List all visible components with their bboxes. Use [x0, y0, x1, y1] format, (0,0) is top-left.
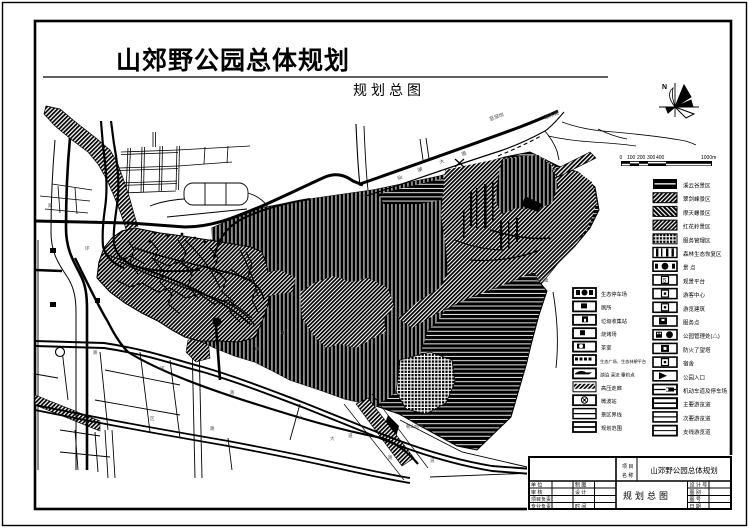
svg-text:朝山修平: 朝山修平: [406, 423, 424, 430]
svg-text:项目负责: 项目负责: [531, 496, 551, 503]
svg-text:N: N: [662, 84, 667, 91]
svg-text:200: 200: [637, 155, 646, 161]
svg-text:审 核: 审 核: [531, 489, 542, 496]
svg-text:1000m: 1000m: [701, 155, 716, 161]
svg-text:垃圾收集站: 垃圾收集站: [601, 317, 627, 325]
svg-text:溪云谷景区: 溪云谷景区: [683, 182, 711, 190]
svg-text:日 期: 日 期: [690, 504, 701, 510]
svg-text:生态停车场: 生态停车场: [601, 290, 627, 298]
svg-text:设 计: 设 计: [575, 489, 586, 496]
svg-text:宿舍: 宿舍: [683, 360, 695, 368]
svg-text:微波站: 微波站: [601, 397, 617, 405]
svg-text:大: 大: [330, 435, 335, 442]
svg-text:森林生态恢复区: 森林生态恢复区: [683, 250, 722, 258]
svg-text:规划范围: 规划范围: [601, 424, 622, 432]
svg-text:防火了望塔: 防火了望塔: [683, 346, 711, 354]
svg-text:制 图: 制 图: [575, 482, 586, 489]
svg-text:翠剑峰景区: 翠剑峰景区: [683, 195, 711, 203]
svg-text:山郊野公园总体规划: 山郊野公园总体规划: [650, 465, 718, 475]
svg-text:观景平台: 观景平台: [683, 277, 706, 285]
svg-text:规划总图: 规划总图: [623, 490, 671, 501]
svg-text:次要游览道: 次要游览道: [683, 414, 711, 422]
svg-text:游览建筑: 游览建筑: [683, 305, 706, 313]
svg-text:专业负责: 专业负责: [531, 503, 551, 510]
svg-text:高压走廊: 高压走廊: [601, 384, 622, 392]
svg-text:山: 山: [487, 269, 492, 276]
svg-text:机动车道及停车场: 机动车道及停车场: [683, 387, 728, 395]
svg-text:图 号: 图 号: [690, 497, 701, 503]
svg-text:设 计 号: 设 计 号: [690, 482, 708, 489]
svg-text:大: 大: [298, 414, 303, 421]
svg-text:山郊野公园总体规划: 山郊野公园总体规划: [116, 47, 350, 75]
svg-text:湖泊 溪流 垂钓点: 湖泊 溪流 垂钓点: [600, 371, 635, 378]
svg-text:400: 400: [656, 155, 665, 161]
svg-text:路: 路: [388, 454, 393, 461]
svg-text:支线游览道: 支线游览道: [683, 428, 711, 436]
svg-text:路: 路: [230, 389, 235, 396]
svg-text:主要游览道: 主要游览道: [683, 401, 711, 409]
svg-text:图 别: 图 别: [690, 489, 701, 496]
svg-text:项 目: 项 目: [622, 464, 633, 470]
svg-text:生态广场、生态林憩平台: 生态广场、生态林憩平台: [600, 358, 646, 365]
svg-text:路: 路: [48, 202, 53, 209]
svg-text:区: 区: [150, 416, 155, 421]
svg-text:山: 山: [280, 329, 285, 336]
svg-text:路: 路: [93, 349, 98, 356]
svg-text:山: 山: [255, 345, 260, 352]
svg-text:规划总图: 规划总图: [353, 82, 425, 98]
svg-text:公园入口: 公园入口: [683, 374, 705, 381]
svg-text:烧烤场: 烧烤场: [601, 330, 617, 338]
svg-text:服务点: 服务点: [683, 319, 700, 327]
svg-text:道: 道: [348, 432, 353, 439]
svg-text:300: 300: [647, 155, 656, 161]
svg-text:厕所: 厕所: [601, 303, 611, 311]
svg-text:湖云峰: 湖云峰: [535, 277, 549, 284]
svg-text:茶室: 茶室: [601, 344, 611, 352]
svg-text:公园管理处(△): 公园管理处(△): [683, 332, 720, 340]
svg-text:100: 100: [627, 155, 636, 161]
svg-text:景区界线: 景区界线: [601, 411, 622, 419]
svg-text:道: 道: [430, 457, 435, 464]
svg-text:景 点: 景 点: [683, 265, 696, 272]
svg-text:服务管理区: 服务管理区: [683, 236, 711, 244]
svg-text:单 位: 单 位: [531, 482, 542, 489]
svg-text:湖: 湖: [120, 295, 125, 302]
svg-text:0: 0: [620, 155, 623, 161]
svg-text:时 间: 时 间: [575, 503, 586, 510]
svg-text:路: 路: [210, 425, 215, 432]
svg-text:名 称: 名 称: [622, 472, 633, 479]
svg-text:游客中心: 游客中心: [683, 291, 706, 299]
svg-text:摩天螺景区: 摩天螺景区: [683, 209, 711, 217]
svg-text:红花岭景区: 红花岭景区: [683, 223, 711, 231]
